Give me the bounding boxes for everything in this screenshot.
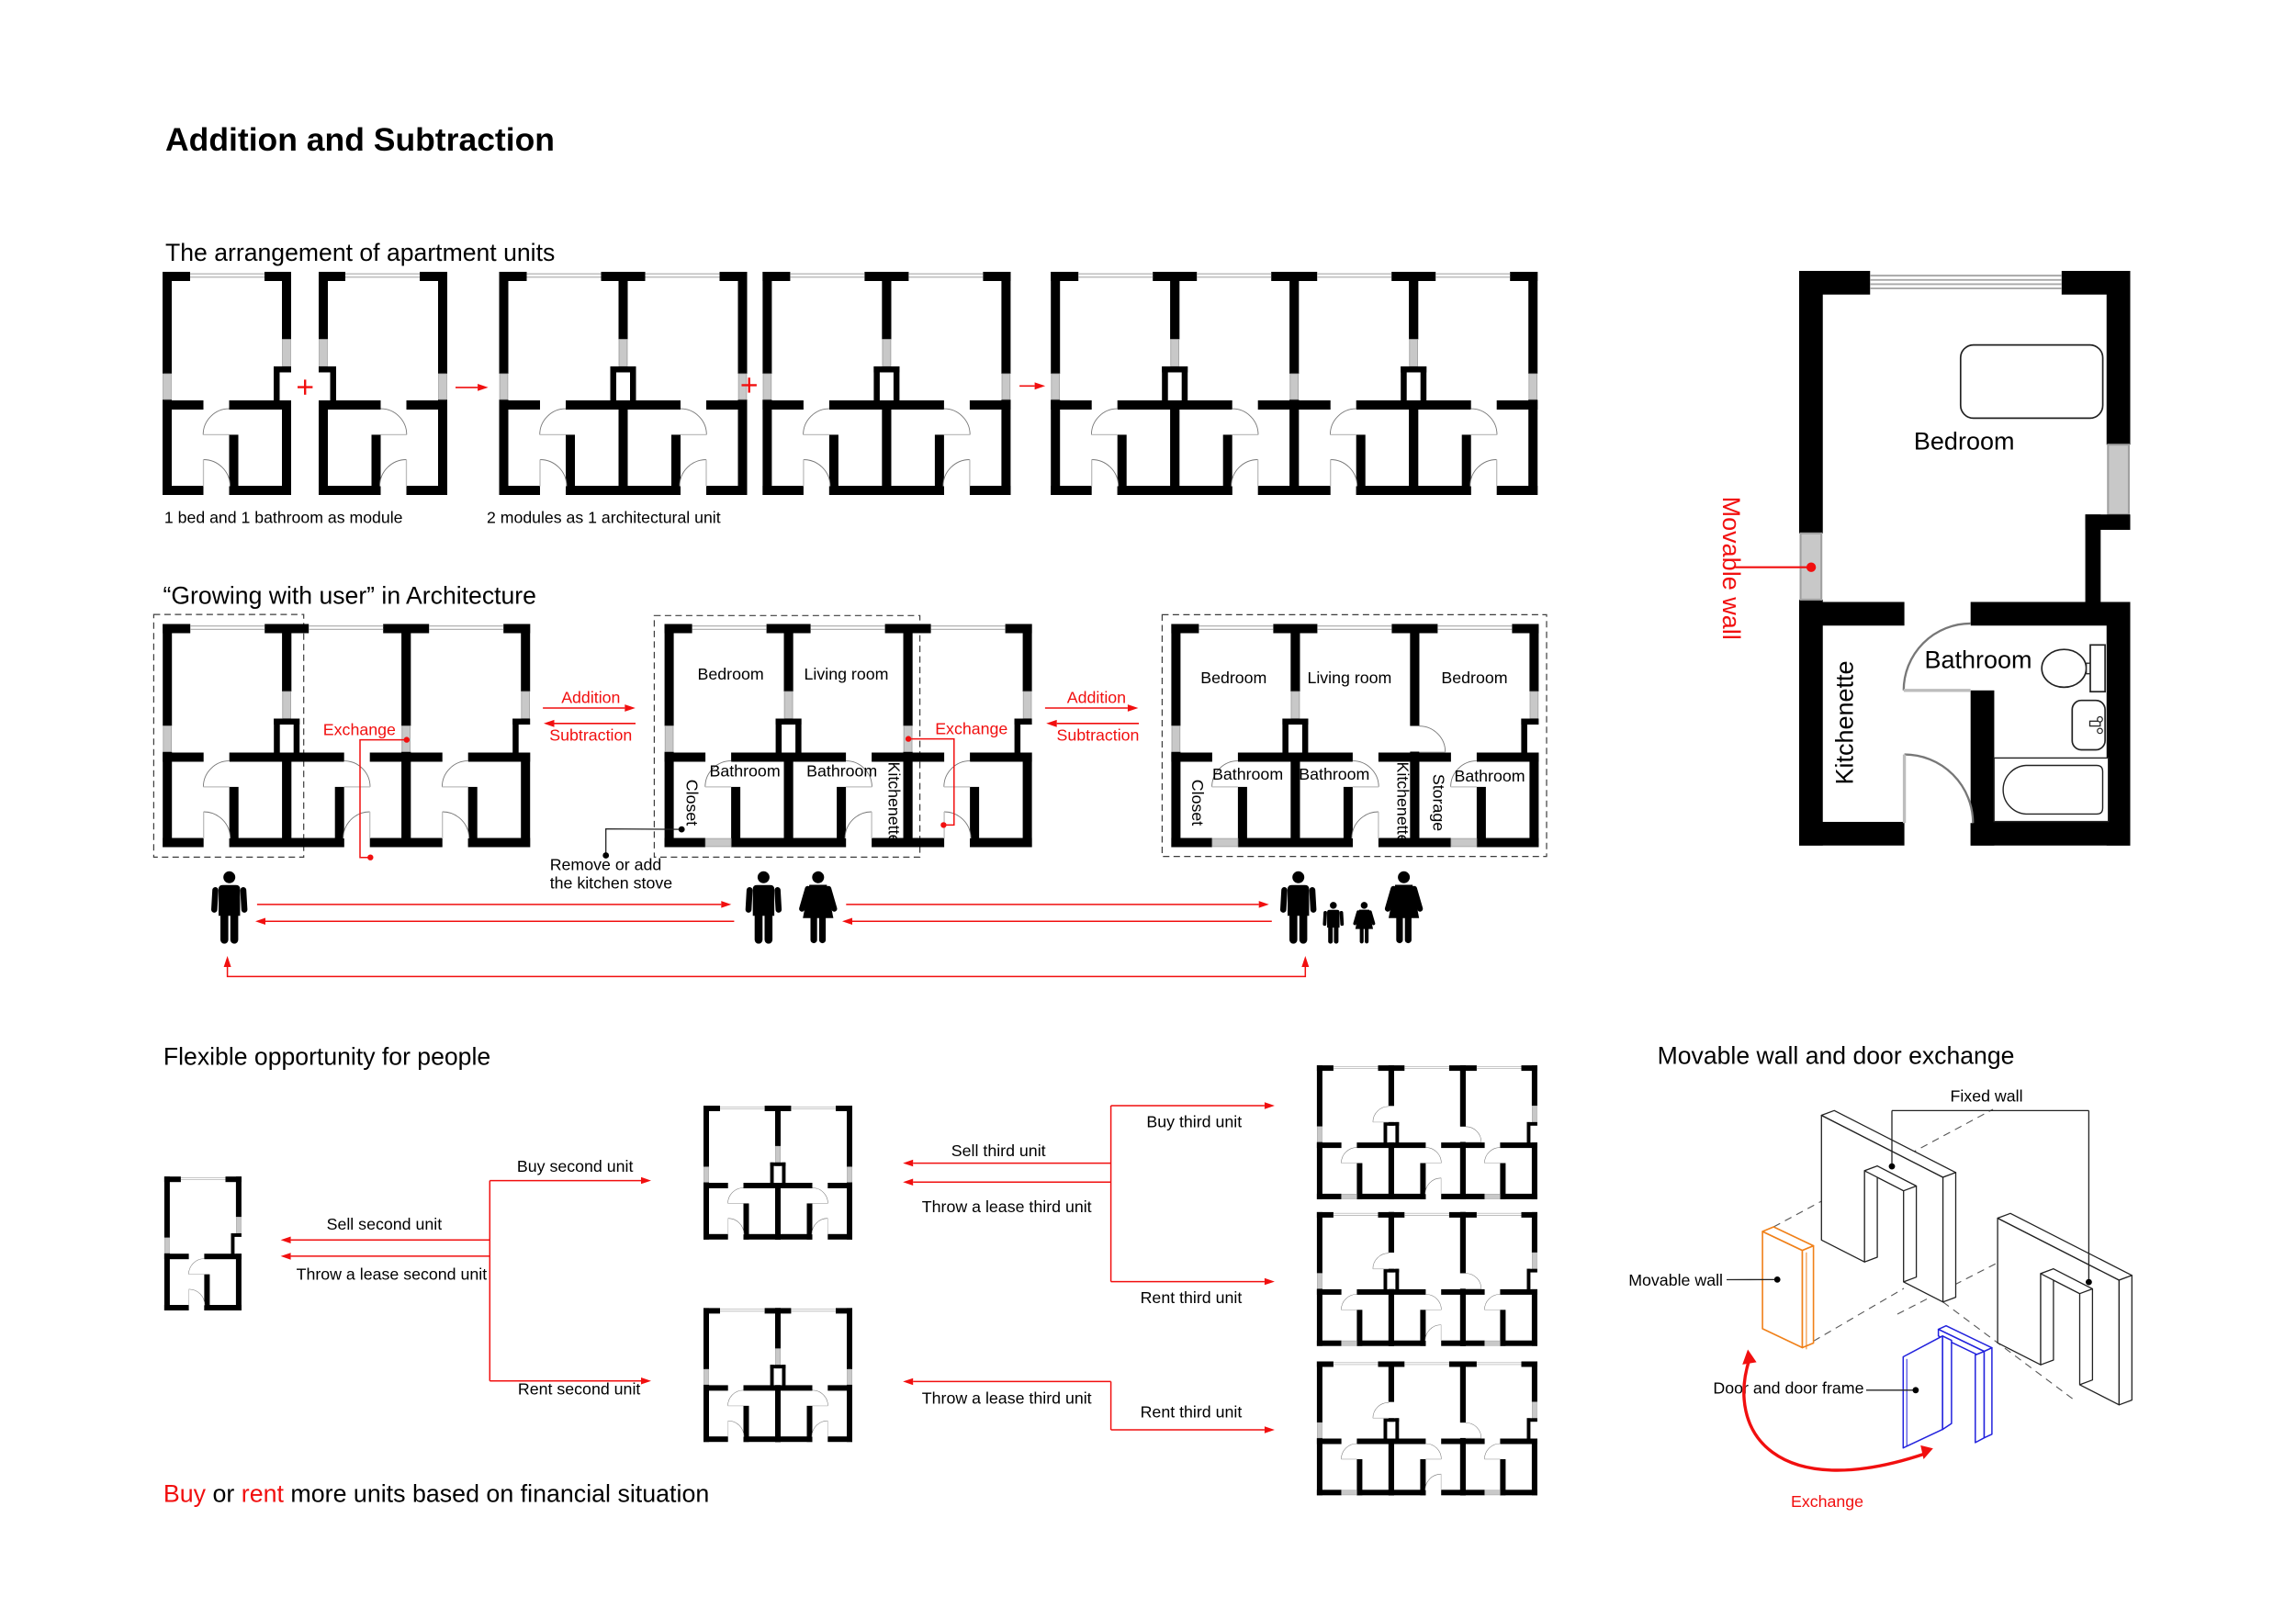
svg-text:Bathroom: Bathroom [1924,646,2032,673]
svg-text:Kitchenette: Kitchenette [885,762,904,844]
svg-text:Addition: Addition [1067,689,1126,707]
svg-text:Exchange: Exchange [935,720,1007,738]
svg-text:Flexible opportunity for peopl: Flexible opportunity for people [163,1043,490,1071]
svg-text:Exchange: Exchange [1791,1492,1863,1511]
svg-text:The arrangement of apartment u: The arrangement of apartment units [165,239,555,266]
svg-text:Addition: Addition [561,689,620,707]
svg-text:Kitchenette: Kitchenette [1394,762,1412,844]
svg-text:Movable wall and door exchange: Movable wall and door exchange [1658,1042,2015,1070]
svg-text:Closet: Closet [683,780,702,826]
svg-text:Bedroom: Bedroom [1200,669,1266,687]
svg-text:Throw a lease second unit: Throw a lease second unit [297,1265,488,1283]
svg-text:Closet: Closet [1188,780,1207,826]
svg-text:Storage: Storage [1430,774,1448,831]
svg-text:Bedroom: Bedroom [1914,427,2015,455]
svg-text:Door and door frame: Door and door frame [1713,1379,1863,1398]
svg-text:Kitchenette: Kitchenette [1831,660,1859,784]
svg-text:Subtraction: Subtraction [1057,726,1140,745]
svg-text:Buy third unit: Buy third unit [1146,1113,1242,1131]
svg-text:Subtraction: Subtraction [549,726,632,745]
svg-text:Buy second unit: Buy second unit [517,1157,634,1175]
svg-text:Sell second unit: Sell second unit [327,1215,443,1233]
svg-text:Movable wall: Movable wall [1628,1271,1723,1289]
svg-text:Living room: Living room [805,665,889,683]
svg-text:Rent third unit: Rent third unit [1141,1402,1243,1421]
svg-text:Remove or add: Remove or add [550,856,662,874]
svg-text:Living room: Living room [1307,669,1391,687]
svg-text:1 bed and 1 bathroom as module: 1 bed and 1 bathroom as module [164,509,403,527]
svg-text:“Growing with user” in Archite: “Growing with user” in Architecture [163,581,536,609]
svg-text:Rent third unit: Rent third unit [1141,1288,1243,1307]
svg-text:Throw a lease third unit: Throw a lease third unit [922,1389,1092,1407]
svg-text:2 modules as 1 architectural u: 2 modules as 1 architectural unit [487,509,721,527]
svg-text:Throw a lease third unit: Throw a lease third unit [922,1197,1092,1216]
svg-text:Bathroom: Bathroom [1212,765,1283,783]
svg-text:Exchange: Exchange [323,721,396,739]
svg-text:Addition and Subtraction: Addition and Subtraction [165,121,555,158]
svg-text:Bathroom: Bathroom [806,762,877,781]
svg-text:Fixed wall: Fixed wall [1951,1086,2023,1105]
svg-text:Buy or rent more units based o: Buy or rent more units based on financia… [163,1479,709,1507]
svg-text:Bathroom: Bathroom [710,762,781,781]
svg-text:the kitchen stove: the kitchen stove [550,874,673,893]
svg-text:Bathroom: Bathroom [1299,765,1369,783]
svg-text:Sell third unit: Sell third unit [951,1141,1046,1160]
svg-text:Bedroom: Bedroom [1441,669,1507,687]
svg-text:Bathroom: Bathroom [1454,767,1525,785]
svg-text:Bedroom: Bedroom [698,665,764,683]
svg-text:Rent second unit: Rent second unit [518,1380,641,1399]
